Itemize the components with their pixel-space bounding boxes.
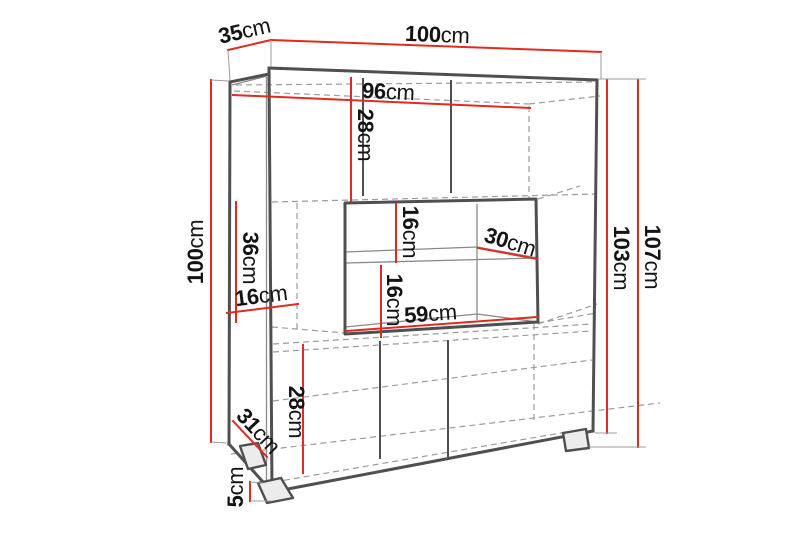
dim-label-lower-section-height: 28cm [284, 386, 309, 439]
dim-label-foot-height: 5cm [223, 467, 248, 508]
foot-front-left [258, 478, 293, 503]
dim-label-niche-shelf-depth: 30cm [481, 222, 539, 261]
dim-label-niche-lower-gap: 16cm [382, 274, 407, 327]
dim-label-body-height: 103cm [609, 226, 634, 291]
dim-label-interior-width: 96cm [362, 78, 416, 105]
dim-label-top-depth: 35cm [216, 13, 273, 49]
dim-label-middle-section-height: 36cm [238, 232, 263, 285]
dim-label-niche-upper-gap: 16cm [398, 206, 423, 259]
dim-label-left-side-height: 100cm [183, 220, 208, 285]
dim-label-upper-section-height: 28cm [353, 109, 378, 162]
dim-label-total-height: 107cm [640, 225, 665, 290]
foot-front-right [563, 429, 589, 451]
diagram-canvas: 35cm 100cm 96cm 28cm 100cm 36cm 16cm 16c… [0, 0, 800, 533]
dim-label-top-width: 100cm [405, 21, 470, 48]
dim-label-niche-width: 59cm [403, 299, 457, 328]
cabinet-dimension-diagram: 35cm 100cm 96cm 28cm 100cm 36cm 16cm 16c… [0, 0, 800, 533]
dimension-labels: 35cm 100cm 96cm 28cm 100cm 36cm 16cm 16c… [183, 13, 665, 508]
